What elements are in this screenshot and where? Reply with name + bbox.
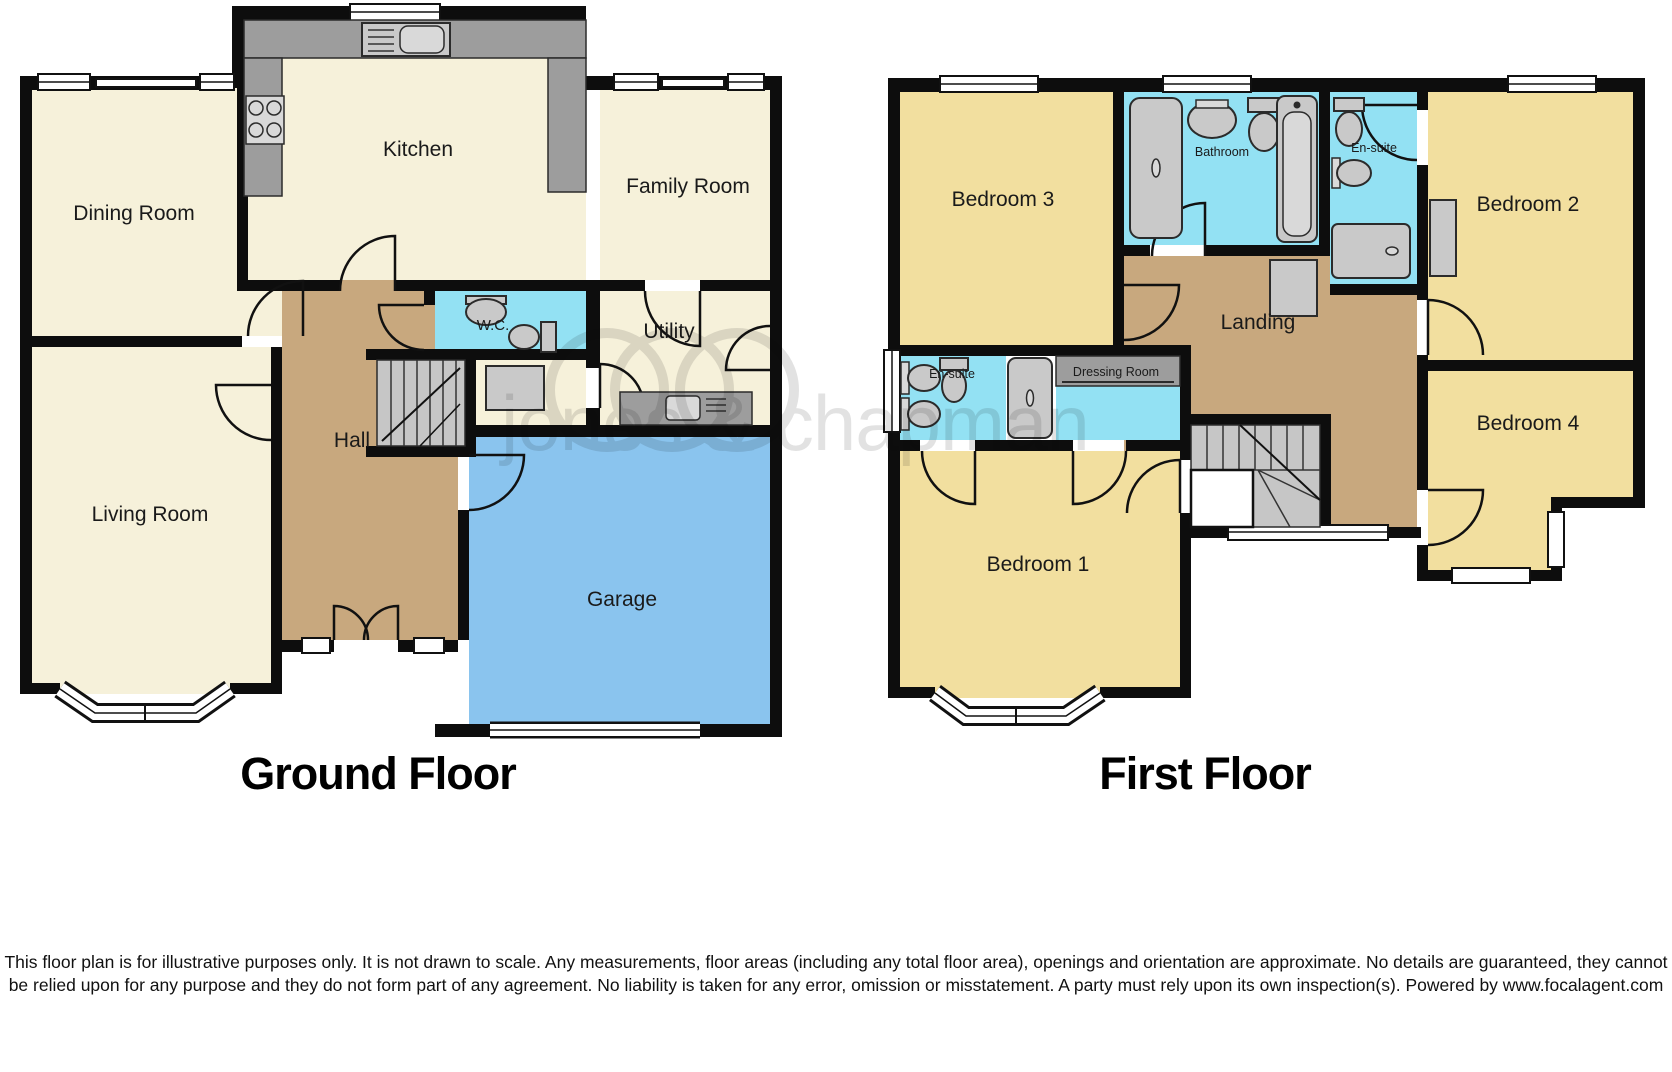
room-label-bedroom4: Bedroom 4 — [1477, 412, 1580, 435]
room-bedroom4-ext — [1428, 497, 1551, 570]
wc-toilet-icon — [509, 322, 556, 352]
room-label-dressing: Dressing Room — [1073, 365, 1159, 379]
kitchen-sink-icon — [362, 23, 450, 56]
window — [302, 638, 330, 653]
disclaimer-text: This floor plan is for illustrative purp… — [0, 951, 1672, 998]
bathroom-toilet-icon — [1248, 98, 1280, 151]
room-bedroom2 — [1428, 92, 1633, 360]
room-label-bedroom1: Bedroom 1 — [987, 553, 1090, 576]
cupboard — [1270, 260, 1317, 316]
cupboard — [486, 366, 544, 410]
ensuite1-shower-icon — [1008, 358, 1052, 438]
room-label-utility: Utility — [643, 320, 695, 343]
room-label-hall: Hall — [334, 429, 370, 452]
first-floor-title: First Floor — [1099, 748, 1311, 800]
window — [414, 638, 444, 653]
ensuite2-toilet-icon — [1334, 98, 1364, 146]
bathtub-icon — [1277, 96, 1317, 242]
room-label-kitchen: Kitchen — [383, 138, 453, 161]
first-floor-plan: Bedroom 3 Bathroom En-suite Bedroom 2 En… — [884, 76, 1645, 725]
kitchen-counter — [548, 58, 586, 192]
room-label-garage: Garage — [587, 588, 657, 611]
room-label-wc: W.C. — [477, 317, 510, 334]
window — [96, 79, 196, 87]
ground-floor-plan: Dining Room Kitchen Family Room W.C. Uti… — [20, 4, 782, 737]
window — [1548, 512, 1564, 567]
room-label-ensuite2: En-suite — [1351, 141, 1397, 155]
hob-icon — [246, 96, 284, 144]
room-label-bedroom3: Bedroom 3 — [952, 188, 1055, 211]
ground-floor-title: Ground Floor — [240, 748, 515, 800]
room-label-bathroom: Bathroom — [1195, 145, 1249, 159]
window — [1452, 568, 1530, 583]
window — [662, 79, 724, 87]
shower-cubicle-icon — [1130, 98, 1182, 238]
room-label-bedroom2: Bedroom 2 — [1477, 193, 1580, 216]
room-garage — [469, 437, 770, 724]
stairs-first — [1191, 425, 1320, 527]
room-label-dining: Dining Room — [73, 202, 194, 225]
wardrobe — [1430, 200, 1456, 276]
shower-tray-icon — [1332, 224, 1410, 278]
room-hall — [282, 280, 458, 640]
utility-counter — [620, 392, 752, 425]
room-label-living: Living Room — [92, 503, 209, 526]
stairs-ground — [377, 360, 465, 446]
room-bedroom3 — [900, 92, 1113, 345]
ensuite2-basin-icon — [1332, 158, 1371, 188]
room-label-landing: Landing — [1221, 311, 1296, 334]
room-label-ensuite1: En-suite — [929, 367, 975, 381]
room-label-family: Family Room — [626, 175, 750, 198]
floorplan-page: Dining Room Kitchen Family Room W.C. Uti… — [0, 0, 1672, 1072]
